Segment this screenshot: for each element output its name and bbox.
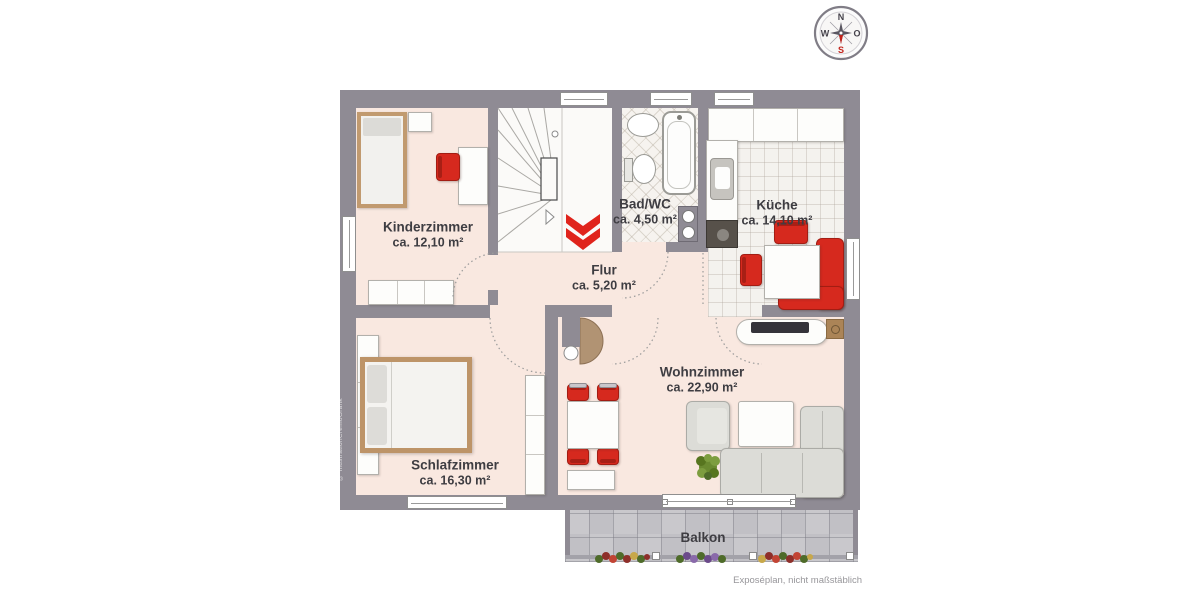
- pot-icon: [717, 229, 729, 241]
- room-name: Kinderzimmer: [383, 219, 473, 235]
- dining-chair: [567, 448, 589, 465]
- compass-s: S: [838, 45, 844, 55]
- tv-sideboard: [736, 319, 828, 345]
- chair-back: [438, 156, 442, 178]
- wall-right: [844, 90, 860, 510]
- tv-icon: [751, 322, 809, 333]
- mattress-line: [391, 362, 392, 448]
- tall-cabinet: [525, 375, 545, 495]
- window: [342, 216, 356, 272]
- label-kueche: Küche ca. 14,10 m²: [742, 197, 813, 228]
- balcony-wall-right: [853, 510, 858, 556]
- room-area: ca. 14,10 m²: [742, 214, 813, 229]
- stove: [706, 220, 738, 248]
- window: [560, 92, 608, 106]
- room-area: ca. 12,10 m²: [383, 236, 473, 251]
- room-name: Flur: [572, 262, 636, 278]
- floorplan-page: N O W S: [0, 0, 1200, 600]
- label-balkon: Balkon: [680, 530, 725, 546]
- wall-hall-living-a: [545, 305, 612, 317]
- sink-basin: [715, 167, 730, 189]
- washer-door-icon: [682, 226, 695, 239]
- window: [714, 92, 754, 106]
- window-handle-icon: [727, 499, 733, 505]
- bed-pillow: [367, 365, 387, 403]
- wall-bath-bottom-a: [612, 242, 622, 252]
- railing-post: [652, 552, 660, 560]
- washbasin: [627, 113, 659, 137]
- room-area: ca. 4,50 m²: [613, 213, 677, 228]
- dining-table: [567, 401, 619, 449]
- room-name: Küche: [742, 197, 813, 213]
- disclaimer-note: Exposéplan, nicht maßstäblich: [733, 575, 862, 586]
- armchair: [686, 401, 730, 451]
- floorplan: Kinderzimmer ca. 12,10 m² Bad/WC ca. 4,5…: [340, 90, 862, 568]
- dining-chair: [597, 448, 619, 465]
- side-unit: [826, 319, 844, 339]
- bathtub: [662, 111, 696, 195]
- desk-chair: [436, 153, 460, 181]
- washing-machine: [678, 206, 698, 242]
- label-bad: Bad/WC ca. 4,50 m²: [613, 196, 677, 227]
- wall-children-bedroom: [356, 305, 490, 318]
- label-flur: Flur ca. 5,20 m²: [572, 262, 636, 293]
- wall-bedroom-living: [545, 317, 558, 495]
- toilet: [632, 154, 656, 184]
- kitchen-sink: [710, 158, 734, 200]
- railing-post: [749, 552, 757, 560]
- window: [846, 238, 860, 300]
- label-kinderzimmer: Kinderzimmer ca. 12,10 m²: [383, 219, 473, 250]
- coffee-table: [738, 401, 794, 447]
- window-handle-icon: [662, 499, 668, 505]
- wall-stairs-bath: [612, 108, 622, 252]
- shelf: [408, 112, 432, 132]
- window: [407, 496, 507, 509]
- armchair-seat: [697, 408, 727, 444]
- compass-o: O: [853, 29, 860, 39]
- chair-back: [742, 257, 746, 283]
- dresser: [368, 280, 454, 305]
- window: [650, 92, 692, 106]
- sofa-bottom: [720, 448, 844, 498]
- faucet-icon: [677, 115, 682, 120]
- room-name: Balkon: [680, 530, 725, 546]
- wall-stub: [488, 290, 498, 305]
- wall-children-stairs: [488, 108, 498, 255]
- label-schlafzimmer: Schlafzimmer ca. 16,30 m²: [411, 457, 499, 488]
- room-name: Bad/WC: [613, 196, 677, 212]
- kitchen-chair: [740, 254, 762, 286]
- floor-stairwell: [498, 108, 612, 252]
- bed-pillow: [367, 407, 387, 445]
- double-bed: [360, 357, 472, 453]
- dining-chair: [597, 384, 619, 401]
- kitchen-counter-top: [708, 108, 844, 142]
- room-area: ca. 22,90 m²: [660, 381, 745, 396]
- room-name: Schlafzimmer: [411, 457, 499, 473]
- balcony-railing: [565, 555, 858, 559]
- compass-n: N: [838, 12, 845, 22]
- compass-w: W: [821, 29, 830, 39]
- bed-pillow: [363, 118, 401, 136]
- dining-chair: [567, 384, 589, 401]
- label-wohnzimmer: Wohnzimmer ca. 22,90 m²: [660, 364, 745, 395]
- room-area: ca. 16,30 m²: [411, 474, 499, 489]
- room-name: Wohnzimmer: [660, 364, 745, 380]
- knob-icon: [831, 325, 840, 334]
- room-area: ca. 5,20 m²: [572, 279, 636, 294]
- watermark: © IllustrationCremoGrafik: [337, 398, 344, 481]
- sideboard: [567, 470, 615, 490]
- window-handle-icon: [790, 499, 796, 505]
- railing-post: [846, 552, 854, 560]
- washer-door-icon: [682, 210, 695, 223]
- kitchen-table: [764, 245, 820, 299]
- balcony-wall-left: [565, 510, 570, 556]
- compass-icon: N O W S: [812, 4, 870, 62]
- desk: [458, 147, 488, 205]
- balcony-door: [662, 494, 796, 508]
- single-bed: [357, 112, 407, 208]
- bathtub-basin: [667, 121, 691, 189]
